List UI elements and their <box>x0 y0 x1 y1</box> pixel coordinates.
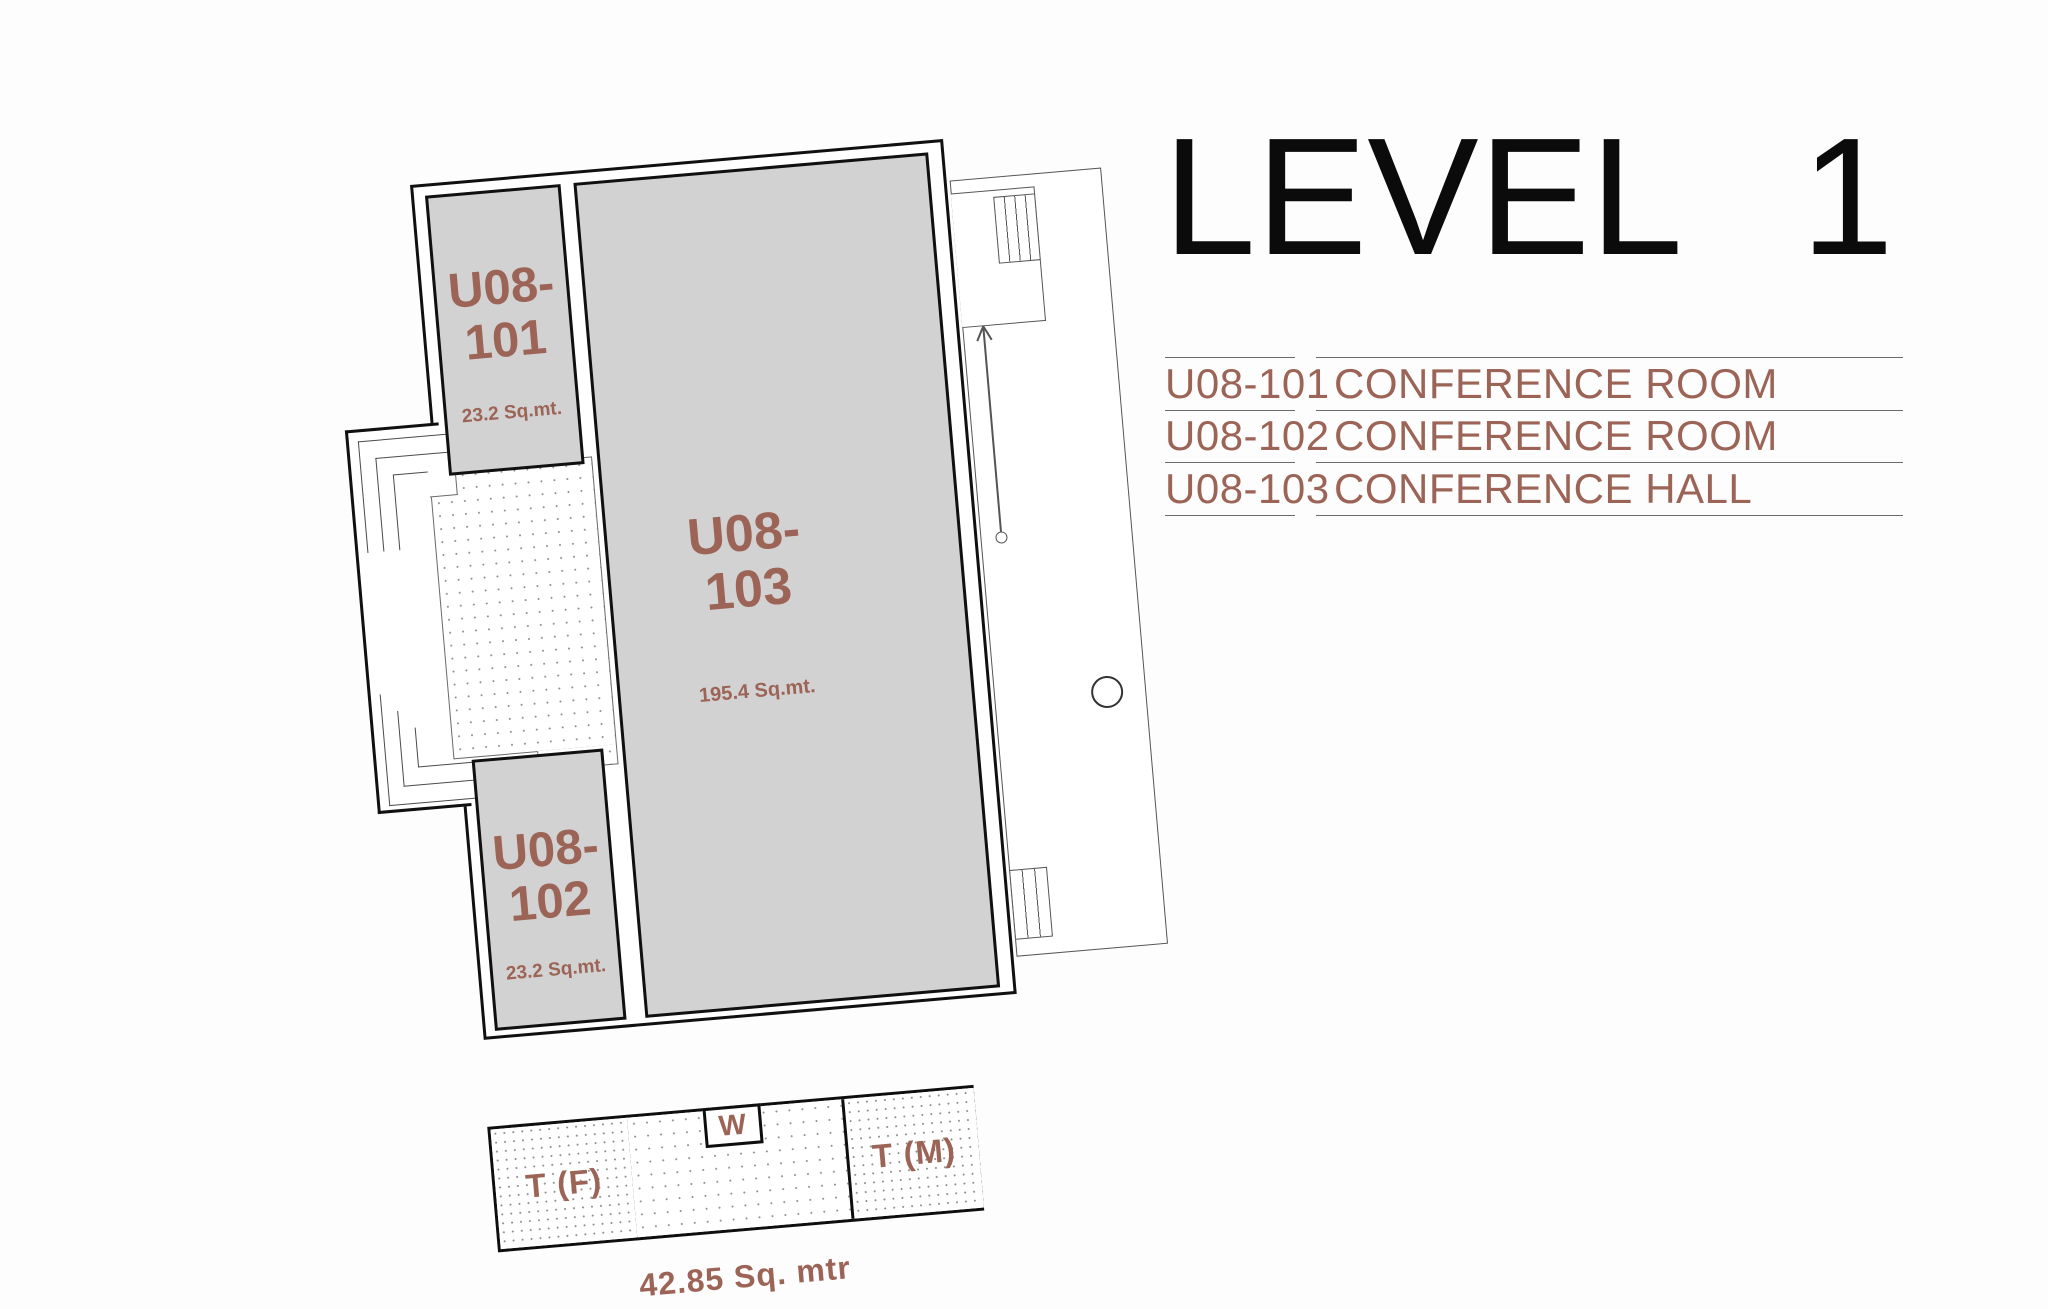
room-area-label: 23.2 Sq.mt. <box>446 397 577 430</box>
water-closet-label: W <box>717 1108 748 1143</box>
legend-gap <box>1295 462 1316 515</box>
legend-row: U08-102 CONFERENCE ROOM <box>1165 410 1903 463</box>
legend-room-name: CONFERENCE HALL <box>1316 462 1903 515</box>
legend-room-name: CONFERENCE ROOM <box>1316 410 1903 463</box>
room-code-label: U08-103 <box>626 496 866 628</box>
legend-room-name: CONFERENCE ROOM <box>1316 357 1903 410</box>
lobby-area <box>429 456 617 759</box>
staircase-treads <box>993 193 1041 263</box>
toilet-male-section: T (M) <box>841 1088 984 1219</box>
toilet-male-label: T (M) <box>871 1131 958 1176</box>
legend-room-code: U08-103 <box>1165 462 1295 515</box>
room-u08-101: U08-101 23.2 Sq.mt. <box>425 184 585 476</box>
lower-staircase-treads <box>1009 867 1053 940</box>
room-area-label: 23.2 Sq.mt. <box>492 954 619 987</box>
toilet-block: T (F) T (M) W <box>487 1085 984 1252</box>
toilet-female-label: T (F) <box>524 1161 603 1205</box>
legend-bottom-rule <box>1165 515 1903 516</box>
room-area-label: 195.4 Sq.mt. <box>641 670 873 713</box>
water-closet-box: W <box>702 1103 763 1148</box>
legend-row: U08-103 CONFERENCE HALL <box>1165 462 1903 515</box>
room-legend: U08-101 CONFERENCE ROOM U08-102 CONFEREN… <box>1165 357 1903 516</box>
floor-plan-page: U08-101 23.2 Sq.mt. U08-103 195.4 Sq.mt.… <box>0 0 2048 1309</box>
title-word: LEVEL <box>1163 104 1683 290</box>
legend-gap <box>1295 357 1316 410</box>
legend-room-code: U08-101 <box>1165 357 1295 410</box>
legend-gap <box>1295 410 1316 463</box>
room-code-label: U08-102 <box>481 818 616 934</box>
room-u08-103: U08-103 195.4 Sq.mt. <box>573 152 1000 1017</box>
toilet-female-section: T (F) <box>490 1118 640 1250</box>
title-number: 1 <box>1801 114 1894 281</box>
room-u08-102: U08-102 23.2 Sq.mt. <box>472 748 627 1030</box>
legend-row: U08-101 CONFERENCE ROOM <box>1165 357 1903 410</box>
legend-room-code: U08-102 <box>1165 410 1295 463</box>
room-code-label: U08-101 <box>434 256 573 373</box>
page-title: LEVEL1 <box>1163 114 1894 281</box>
